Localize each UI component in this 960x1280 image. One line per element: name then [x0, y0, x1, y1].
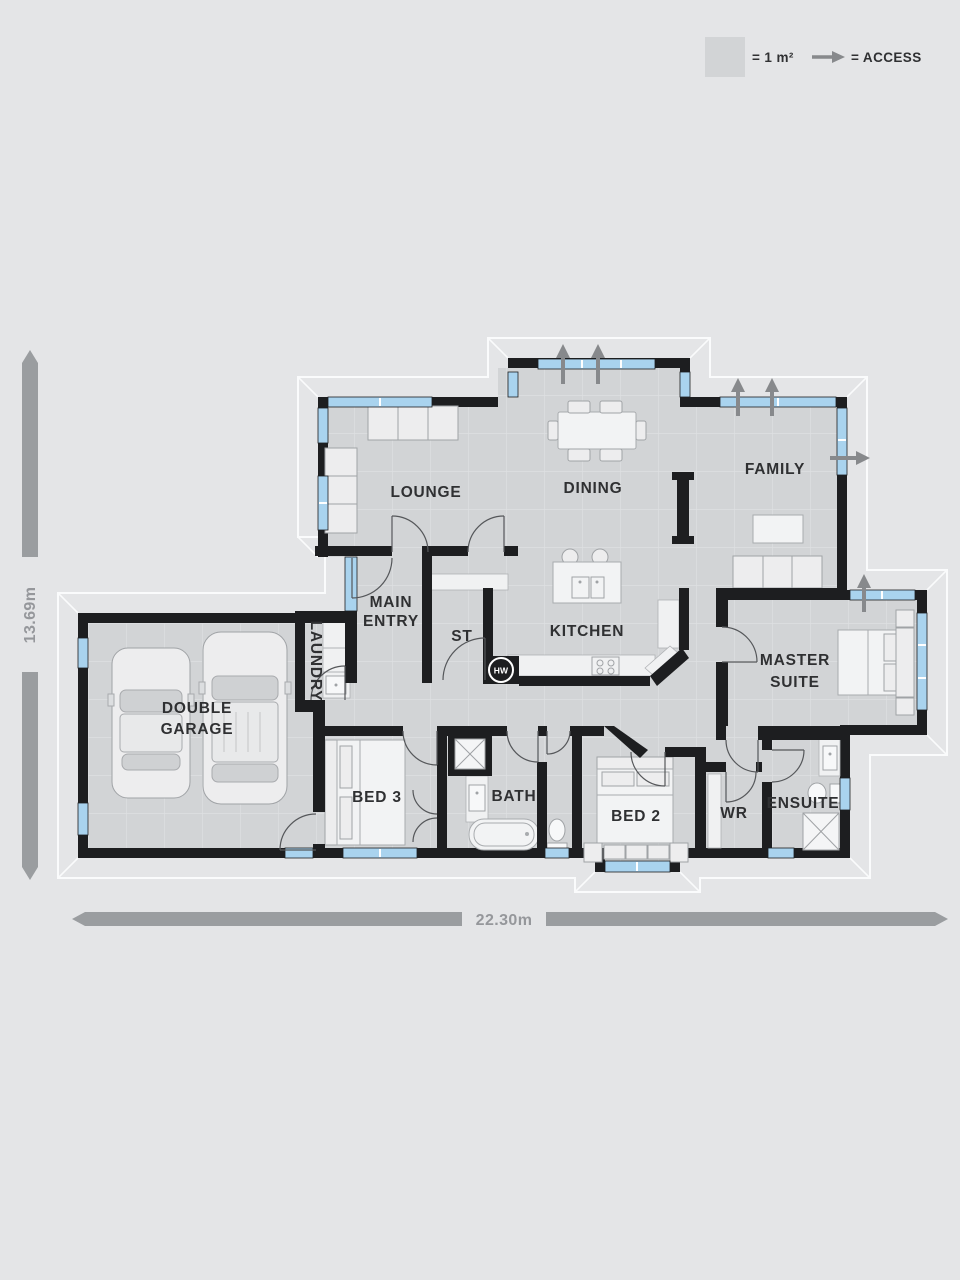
window: [850, 590, 915, 600]
wardrobe-shelf: [708, 774, 721, 848]
width-dimension-label: 22.30m: [476, 912, 533, 929]
room-label-bed2: BED 2: [611, 808, 661, 825]
room-label-family: FAMILY: [745, 461, 805, 478]
window: [318, 476, 328, 530]
window: [545, 848, 569, 858]
window: [328, 397, 432, 407]
window: [508, 372, 518, 397]
floor-plan-canvas: HW LOUNGE DINING FAMILY MAIN ENTRY ST KI…: [0, 0, 960, 1280]
family-coffee-table: [753, 515, 803, 543]
room-label-master-1: MASTER: [760, 652, 830, 669]
hot-water-badge: HW: [489, 658, 513, 682]
window: [680, 372, 690, 397]
room-label-wardrobe: WR: [720, 805, 747, 822]
window: [78, 638, 88, 668]
window: [605, 861, 670, 872]
room-label-master-2: SUITE: [770, 674, 820, 691]
window: [917, 613, 927, 710]
room-label-bed3: BED 3: [352, 789, 402, 806]
height-dimension: 13.69m: [22, 350, 39, 880]
window: [343, 848, 417, 858]
window: [768, 848, 794, 858]
room-label-laundry: LAUNDRY: [307, 621, 324, 702]
legend-area-label: = 1 m²: [752, 50, 794, 65]
bath-shower: [455, 739, 485, 769]
room-label-main-entry-2: ENTRY: [363, 613, 419, 630]
floor-plan-page: HW LOUNGE DINING FAMILY MAIN ENTRY ST KI…: [0, 0, 960, 1280]
window: [837, 408, 847, 475]
room-label-main-entry-1: MAIN: [370, 594, 413, 611]
room-label-storage: ST: [451, 628, 472, 645]
legend-access-label: = ACCESS: [851, 50, 922, 65]
car-suv: [199, 632, 291, 804]
room-label-dining: DINING: [563, 480, 622, 497]
window: [840, 778, 850, 810]
window: [318, 408, 328, 443]
entry-shelf: [430, 574, 508, 590]
front-door-glazing: [345, 557, 357, 611]
room-label-bath: BATH: [491, 788, 536, 805]
hot-water-label: HW: [494, 666, 509, 676]
window: [78, 803, 88, 835]
room-label-garage-2: GARAGE: [161, 721, 234, 738]
room-label-ensuite: ENSUITE: [767, 795, 840, 812]
room-label-garage-1: DOUBLE: [162, 700, 232, 717]
room-label-kitchen: KITCHEN: [550, 623, 625, 640]
height-dimension-label: 13.69m: [22, 587, 39, 644]
room-label-lounge: LOUNGE: [390, 484, 461, 501]
family-sofa: [733, 556, 822, 588]
legend-square-icon: [705, 37, 745, 77]
